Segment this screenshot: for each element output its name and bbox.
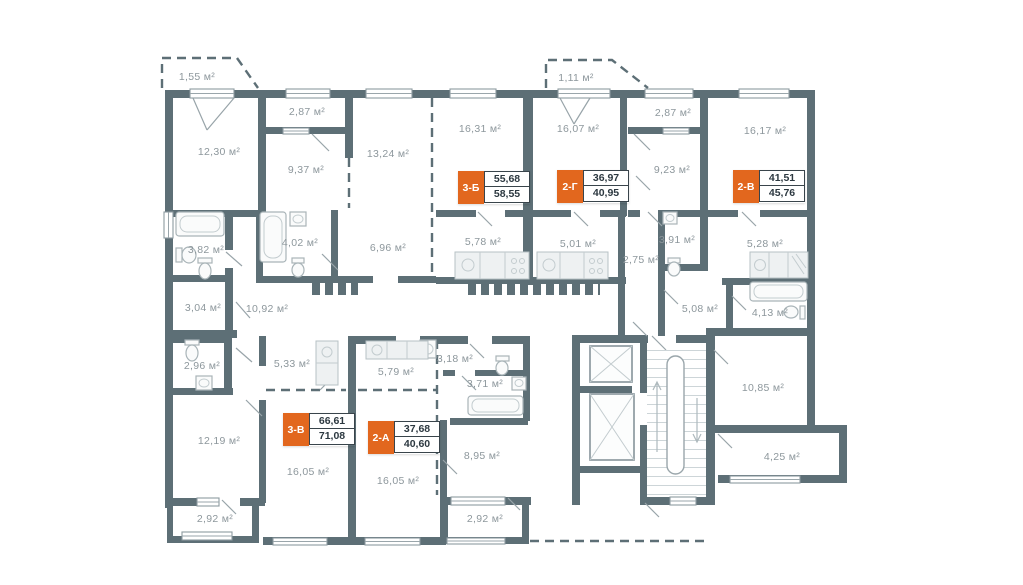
apartment-total-area: 45,76 — [759, 185, 805, 202]
window — [190, 89, 234, 98]
apartment-badge[interactable]: 2-А 37,68 40,60 — [368, 421, 440, 454]
apartment-badge[interactable]: 3-В 66,61 71,08 — [283, 413, 355, 446]
room-area-label: 16,31 м² — [459, 123, 501, 135]
apartment-code: 2-Г — [557, 170, 583, 203]
stairs-icon — [647, 343, 706, 497]
window — [286, 89, 330, 98]
window — [645, 89, 693, 98]
room-area-label: 16,07 м² — [557, 123, 599, 135]
room-area-label: 5,33 м² — [274, 358, 310, 370]
room-area-label: 16,05 м² — [287, 466, 329, 478]
room-area-label: 10,92 м² — [246, 303, 288, 315]
room-area-label: 2,87 м² — [289, 106, 325, 118]
room-area-label: 5,08 м² — [682, 303, 718, 315]
partition-grill — [312, 283, 358, 295]
room-area-label: 16,17 м² — [744, 125, 786, 137]
floor-plan: 1,55 м² 2,87 м² 12,30 м² 9,37 м² 13,24 м… — [0, 0, 1023, 585]
room-area-label: 4,25 м² — [764, 451, 800, 463]
toilet — [292, 258, 304, 277]
room-area-label: 2,92 м² — [467, 513, 503, 525]
room-area-label: 2,75 м² — [623, 254, 659, 266]
sink — [196, 376, 212, 390]
window — [366, 89, 412, 98]
room-area-label: 16,05 м² — [377, 475, 419, 487]
toilet — [185, 340, 199, 361]
window — [730, 476, 800, 483]
bathtub — [176, 212, 224, 236]
kitchen-counter — [366, 341, 428, 359]
room-area-label: 2,92 м² — [197, 513, 233, 525]
apartment-total-area: 40,60 — [394, 436, 440, 453]
room-area-label: 5,78 м² — [465, 236, 501, 248]
apartment-code: 3-Б — [458, 171, 484, 204]
room-area-label: 1,11 м² — [558, 72, 593, 84]
window — [182, 532, 232, 540]
sink — [663, 212, 677, 224]
window — [164, 212, 173, 238]
bathtub — [750, 282, 807, 301]
room-area-label: 9,23 м² — [654, 164, 690, 176]
sink — [290, 212, 306, 226]
window — [197, 498, 219, 506]
window — [451, 497, 505, 505]
room-area-label: 3,71 м² — [467, 378, 503, 390]
room-area-label: 3,91 м² — [659, 234, 695, 246]
room-area-label: 3,04 м² — [185, 302, 221, 314]
room-area-label: 4,02 м² — [282, 237, 318, 249]
apartment-code: 2-А — [368, 421, 394, 454]
toilet — [496, 356, 509, 375]
apartment-badge[interactable]: 3-Б 55,68 58,55 — [458, 171, 530, 204]
window — [739, 89, 789, 98]
kitchen-counter — [750, 252, 808, 278]
room-area-label: 10,85 м² — [742, 382, 784, 394]
apartment-badge[interactable]: 2-Г 36,97 40,95 — [557, 170, 629, 203]
sink — [512, 377, 526, 390]
toilet — [198, 258, 212, 279]
apartment-total-area: 40,95 — [583, 185, 629, 202]
apartment-badge[interactable]: 2-В 41,51 45,76 — [733, 170, 805, 203]
room-area-label: 6,96 м² — [370, 242, 406, 254]
window — [283, 128, 309, 134]
window — [273, 538, 327, 545]
kitchen-unit — [316, 341, 338, 385]
room-area-label: 8,95 м² — [464, 450, 500, 462]
room-area-label: 12,19 м² — [198, 435, 240, 447]
toilet — [668, 258, 680, 276]
bathtub — [468, 396, 523, 415]
elevator-icon — [590, 346, 634, 460]
room-area-label: 9,37 м² — [288, 164, 324, 176]
kitchen-counter — [537, 252, 608, 279]
room-area-label: 5,28 м² — [747, 238, 783, 250]
apartment-code: 3-В — [283, 413, 309, 446]
room-area-label: 3,18 м² — [437, 353, 473, 365]
apartment-total-area: 71,08 — [309, 428, 355, 445]
window — [365, 538, 420, 545]
window — [670, 497, 696, 505]
room-area-label: 13,24 м² — [367, 148, 409, 160]
room-area-label: 3,82 м² — [188, 244, 224, 256]
room-area-label: 12,30 м² — [198, 146, 240, 158]
room-area-label: 2,96 м² — [184, 360, 220, 372]
floor-plan-drawing — [0, 0, 1023, 585]
window — [663, 128, 689, 134]
room-area-label: 2,87 м² — [655, 107, 691, 119]
kitchen-counter — [455, 252, 529, 279]
apartment-total-area: 58,55 — [484, 186, 530, 203]
window — [558, 89, 610, 98]
room-area-label: 5,01 м² — [560, 238, 596, 250]
apartment-code: 2-В — [733, 170, 759, 203]
window — [447, 538, 505, 544]
room-area-label: 4,13 м² — [752, 307, 788, 319]
window — [450, 89, 496, 98]
room-area-label: 5,79 м² — [378, 366, 414, 378]
partition-grill — [468, 283, 600, 295]
room-area-label: 1,55 м² — [179, 71, 215, 83]
